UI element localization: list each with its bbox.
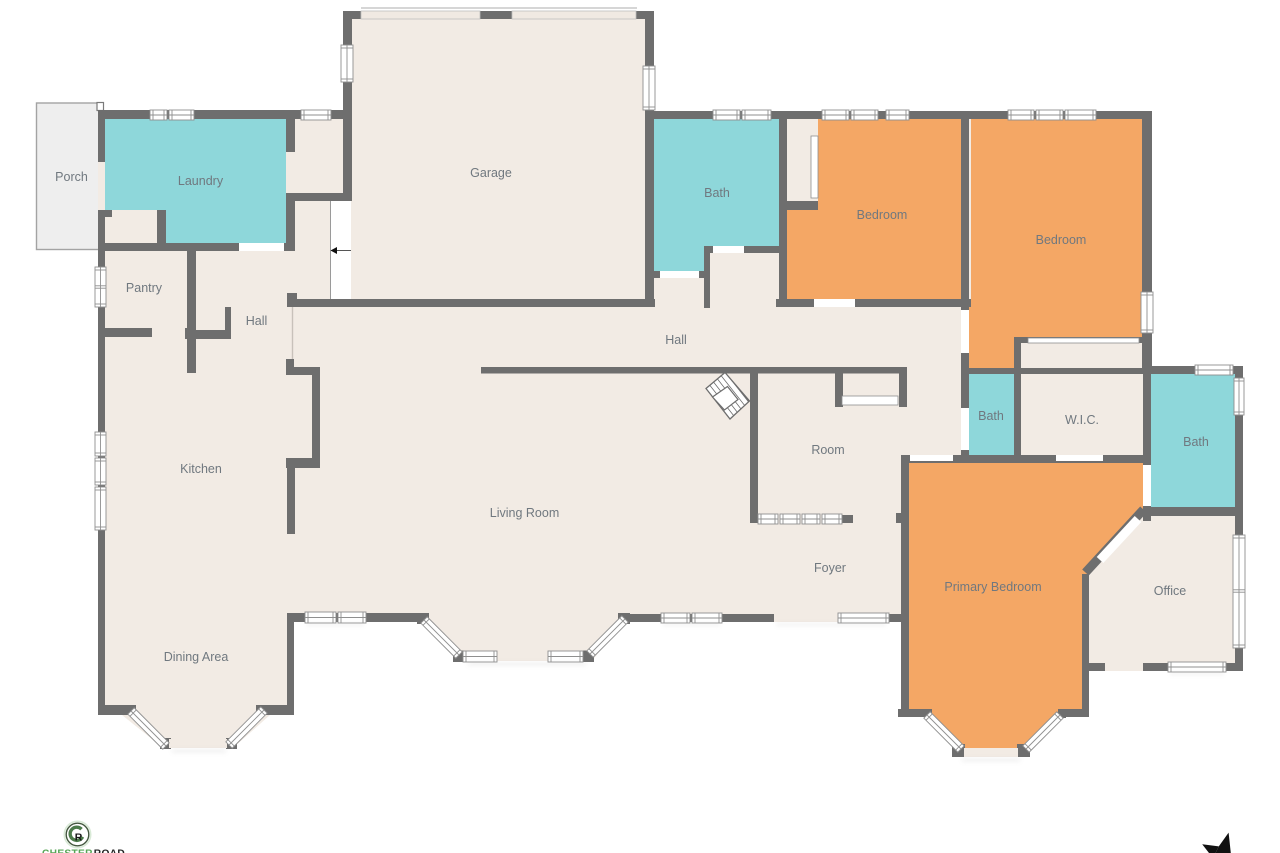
svg-text:Hall: Hall [246, 314, 268, 328]
svg-text:Hall: Hall [665, 333, 687, 347]
svg-text:Foyer: Foyer [814, 561, 846, 575]
svg-text:Bath: Bath [1183, 435, 1209, 449]
svg-text:Garage: Garage [470, 166, 512, 180]
svg-text:Pantry: Pantry [126, 281, 163, 295]
svg-text:Kitchen: Kitchen [180, 462, 222, 476]
svg-text:Living Room: Living Room [490, 506, 559, 520]
svg-text:Porch: Porch [55, 170, 88, 184]
svg-text:Laundry: Laundry [178, 174, 224, 188]
svg-text:Dining Area: Dining Area [164, 650, 229, 664]
svg-text:Primary Bedroom: Primary Bedroom [944, 580, 1041, 594]
svg-text:R: R [75, 832, 83, 844]
svg-text:W.I.C.: W.I.C. [1065, 413, 1099, 427]
svg-text:Bath: Bath [704, 186, 730, 200]
svg-text:Room: Room [811, 443, 844, 457]
svg-text:CHESTERROAD: CHESTERROAD [42, 849, 125, 853]
svg-text:Bedroom: Bedroom [857, 208, 908, 222]
svg-text:Bath: Bath [978, 409, 1004, 423]
svg-text:Office: Office [1154, 584, 1186, 598]
svg-text:Bedroom: Bedroom [1036, 233, 1087, 247]
